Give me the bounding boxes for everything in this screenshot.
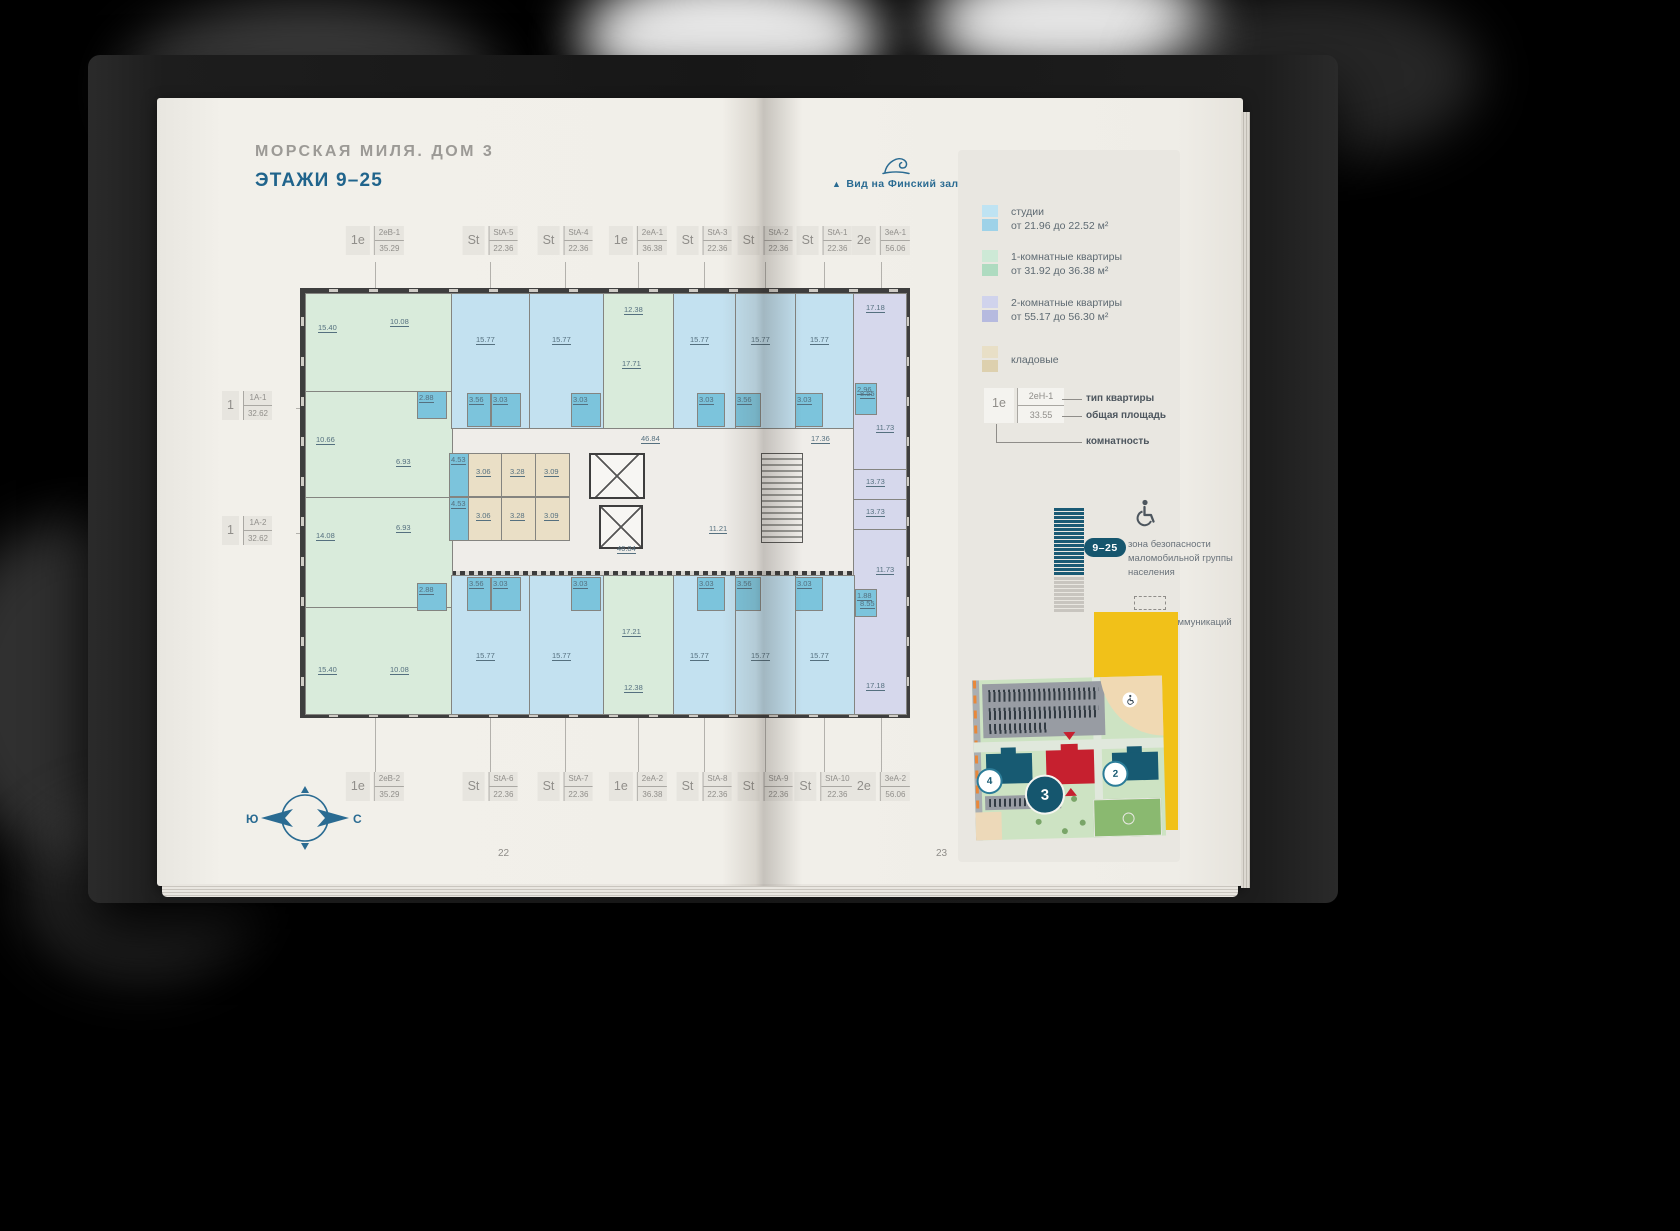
view-direction-icon: ▲: [832, 179, 841, 189]
building-3-badge: 3: [1024, 774, 1065, 815]
plan-callout-bottom: StStA-722.36: [538, 772, 593, 801]
room-area-label: 4.53: [451, 456, 466, 465]
room-area-label: 3.28: [510, 468, 525, 477]
apartment-unit: 17.2112.38: [603, 575, 675, 715]
apartment-area: 32.62: [244, 406, 272, 420]
callout-rooms-label: комнатность: [1086, 436, 1149, 447]
plan-callout-bottom: 1е2еА-236.38: [609, 772, 667, 801]
legend-panel: студииот 21.96 до 22.52 м² 1-комнатные к…: [958, 150, 1180, 862]
room-area-label: 3.09: [544, 468, 559, 477]
apartment-unit: 13.73: [853, 499, 907, 531]
callout-connector: [375, 262, 376, 288]
callout-connector: [704, 262, 705, 288]
bathroom-cell: 3.56: [735, 577, 761, 611]
building-4-badge: 4: [976, 768, 1003, 795]
apartment-rooms: St: [538, 226, 560, 255]
apartment-type: 2еА-2: [638, 772, 667, 787]
apartment-rooms: St: [738, 226, 760, 255]
callout-connector: [765, 718, 766, 772]
map-football-field: [1093, 798, 1162, 838]
apartment-type: StA-5: [489, 226, 517, 241]
room-area-label: 6.93: [396, 458, 411, 467]
apartment-type: StA-6: [489, 772, 517, 787]
plan-callout-top: 1е2еА-136.38: [609, 226, 667, 255]
bathroom-cell: 3.03: [571, 393, 601, 427]
plan-callout-bottom: 2е3еА-256.06: [852, 772, 910, 801]
apartment-type: StA-7: [564, 772, 592, 787]
apartment-type: 3еА-1: [881, 226, 910, 241]
apartment-type: StA-4: [564, 226, 592, 241]
room-area-label: 3.03: [493, 396, 508, 405]
apartment-type: 3еА-2: [881, 772, 910, 787]
legend-label: 2-комнатные квартиры: [1011, 297, 1122, 309]
callout-type-label: тип квартиры: [1086, 393, 1154, 404]
plan-callout-top: StStA-322.36: [677, 226, 732, 255]
room-area-label: 15.40: [318, 666, 337, 675]
bathroom-cell: 3.03: [491, 577, 521, 611]
callout-connector: [490, 718, 491, 772]
legend-swatch: [982, 296, 998, 325]
apartment-unit: 3.28: [501, 453, 536, 497]
bathroom-cell: 3.56: [735, 393, 761, 427]
room-area-label: 17.71: [622, 360, 641, 369]
room-area-label: 17.21: [622, 628, 641, 637]
apartment-unit: 3.09: [535, 453, 570, 497]
room-area-label: 4.53: [451, 500, 466, 509]
apartment-type: 2еА-1: [638, 226, 667, 241]
corridor-area-label: 46.84: [617, 545, 636, 554]
room-area-label: 3.06: [476, 512, 491, 521]
room-area-label: 14.08: [316, 532, 335, 541]
legend-swatch: [982, 205, 998, 234]
elevator-shaft: [599, 505, 643, 549]
legend-range: от 21.96 до 22.52 м²: [1011, 220, 1108, 232]
apartment-area: 22.36: [764, 241, 792, 255]
page-stack: [1241, 112, 1250, 888]
page-subtitle: ЭТАЖИ 9–25: [255, 170, 383, 192]
room-area-label: 12.38: [624, 306, 643, 315]
plan-callout-bottom: StStA-922.36: [738, 772, 793, 801]
building-floors-rest: [1054, 577, 1084, 612]
apartment-rooms: 1е: [609, 226, 633, 255]
bathroom-cell: 2.88: [417, 391, 447, 419]
legend-swatch: [982, 346, 998, 374]
apartment-rooms: St: [738, 772, 760, 801]
room-area-label: 6.93: [396, 524, 411, 533]
room-area-label: 3.03: [573, 580, 588, 589]
callout-connector: [824, 262, 825, 288]
callout-connector: [765, 262, 766, 288]
floors-badge: 9–25: [1084, 538, 1126, 557]
apartment-unit: 3.06: [467, 497, 502, 541]
room-area-label: 15.77: [476, 652, 495, 661]
building-2-badge: 2: [1102, 760, 1129, 787]
plan-callout-top: StStA-222.36: [738, 226, 793, 255]
apartment-rooms: St: [677, 772, 699, 801]
callout-connector: [490, 262, 491, 288]
apartment-area: 22.36: [821, 787, 853, 801]
room-area-label: 15.77: [810, 652, 829, 661]
bathroom-cell: 4.53: [449, 497, 469, 541]
apartment-rooms: 1: [222, 516, 239, 545]
legend-range: от 55.17 до 56.30 м²: [1011, 311, 1108, 323]
apartment-unit: 3.28: [501, 497, 536, 541]
plan-callout-side: 11А-232.62: [222, 516, 272, 545]
apartment-unit: 13.73: [853, 469, 907, 501]
room-area-label: 3.56: [737, 580, 752, 589]
room-area-label: 3.06: [476, 468, 491, 477]
bathroom-cell: 3.03: [697, 393, 725, 427]
right-page-number: 23: [936, 848, 947, 859]
room-area-label: 15.77: [476, 336, 495, 345]
callout-connector: [565, 718, 566, 772]
view-marker-icon: [1063, 732, 1075, 740]
apartment-area: 56.06: [881, 241, 910, 255]
room-area-label: 15.77: [690, 336, 709, 345]
room-area-label: 15.40: [318, 324, 337, 333]
room-area-label: 2.88: [419, 394, 434, 403]
callout-connector: [881, 262, 882, 288]
apartment-type: StA-8: [703, 772, 731, 787]
apartment-type: 1А-2: [244, 516, 272, 531]
apartment-area: 22.36: [703, 787, 731, 801]
elevator-shaft: [589, 453, 645, 499]
apartment-unit: 3.09: [535, 497, 570, 541]
room-area-label: 3.03: [699, 580, 714, 589]
wheelchair-icon: [1132, 498, 1156, 533]
plan-callout-bottom: 1е2еВ-235.29: [346, 772, 404, 801]
corridor-area-label: 11.21: [709, 525, 727, 534]
room-area-label: 12.38: [624, 684, 643, 693]
apartment-type: StA-10: [821, 772, 853, 787]
corridor-area-label: 46.84: [641, 435, 660, 444]
scene: МОРСКАЯ МИЛЯ. ДОМ 3 ЭТАЖИ 9–25 15.4010.0…: [0, 0, 1680, 1231]
room-area-label: 11.73: [876, 566, 894, 575]
room-area-label: 3.09: [544, 512, 559, 521]
room-area-label: 15.77: [810, 336, 829, 345]
plan-callout-top: StStA-522.36: [463, 226, 518, 255]
apartment-area: 22.36: [823, 241, 851, 255]
apartment-type: 2еВ-1: [375, 226, 404, 241]
bathroom-cell: 4.53: [449, 453, 469, 497]
room-area-label: 3.56: [469, 396, 484, 405]
apartment-rooms: 1е: [346, 226, 370, 255]
apartment-type: StA-9: [764, 772, 792, 787]
callout-connector: [375, 718, 376, 772]
apartment-area: 32.62: [244, 531, 272, 545]
apartment-rooms: St: [538, 772, 560, 801]
legend-item-studios: студииот 21.96 до 22.52 м²: [982, 205, 1108, 234]
apartment-area: 22.36: [564, 241, 592, 255]
bathroom-cell: 3.56: [467, 393, 491, 427]
room-area-label: 10.08: [390, 666, 409, 675]
site-map: 4 3 2: [972, 676, 1166, 841]
left-page-number: 22: [498, 848, 509, 859]
legend-label: 1-комнатные квартиры: [1011, 251, 1122, 263]
apartment-rooms: St: [463, 226, 485, 255]
accessibility-note: зона безопасности маломобильной группы н…: [1128, 538, 1256, 579]
bathroom-cell: 3.03: [697, 577, 725, 611]
map-sand-area: [975, 812, 1002, 841]
room-area-label: 11.73: [876, 424, 894, 433]
plan-callout-bottom: StStA-622.36: [463, 772, 518, 801]
bathroom-cell: 3.03: [491, 393, 521, 427]
room-area-label: 2.88: [419, 586, 434, 595]
apartment-area: 36.38: [638, 241, 667, 255]
view-marker-icon: [1065, 788, 1077, 796]
room-area-label: 3.56: [737, 396, 752, 405]
apartment-area: 22.36: [764, 787, 792, 801]
compass-east-label: С: [353, 812, 362, 826]
legend-swatch: [982, 250, 998, 279]
apartment-rooms: 1: [222, 391, 239, 420]
building-floors-highlight: [1054, 508, 1084, 576]
apartment-area: 22.36: [564, 787, 592, 801]
apartment-area: 35.29: [375, 241, 404, 255]
bathroom-cell: 3.03: [795, 393, 823, 427]
apartment-area: 22.36: [703, 241, 731, 255]
apartment-label-example: 1е 2еН-1 33.55: [984, 388, 1064, 423]
apartment-rooms: St: [794, 772, 816, 801]
stairwell: [761, 453, 803, 543]
bathroom-cell: 2.88: [417, 583, 447, 611]
page-stack: [162, 884, 1238, 897]
room-area-label: 15.77: [690, 652, 709, 661]
room-area-label: 15.77: [751, 652, 770, 661]
apartment-rooms: St: [463, 772, 485, 801]
apartment-rooms: 1е: [346, 772, 370, 801]
plan-callout-side: 11А-132.62: [222, 391, 272, 420]
room-area-label: 10.66: [316, 436, 335, 445]
window-ticks: [301, 293, 304, 713]
legend-range: от 31.92 до 36.38 м²: [1011, 265, 1108, 277]
room-area-label: 13.73: [866, 478, 885, 487]
apartment-unit: 17.188.5511.73: [853, 293, 907, 471]
plan-callout-top: 2е3еА-156.06: [852, 226, 910, 255]
bathroom-cell: 3.03: [795, 577, 823, 611]
example-area: 33.55: [1018, 406, 1064, 423]
apartment-area: 56.06: [881, 787, 910, 801]
apartment-area: 35.29: [375, 787, 404, 801]
room-area-label: 15.77: [552, 336, 571, 345]
room-area-label: 3.03: [573, 396, 588, 405]
legend-item-two-room: 2-комнатные квартирыот 55.17 до 56.30 м²: [982, 296, 1122, 325]
callout-area-label: общая площадь: [1086, 410, 1166, 421]
room-area-label: 1.88: [857, 592, 872, 601]
legend-item-storage: кладовые: [982, 346, 1059, 374]
callout-connector: [704, 718, 705, 772]
bathroom-cell: 3.03: [571, 577, 601, 611]
apartment-type: StA-3: [703, 226, 731, 241]
room-area-label: 2.96: [857, 386, 872, 395]
room-area-label: 17.18: [866, 682, 885, 691]
window-ticks: [305, 289, 905, 292]
apartment-unit: 11.738.5517.18: [853, 529, 907, 715]
callout-connector: [565, 262, 566, 288]
apartment-rooms: 2е: [852, 226, 876, 255]
callout-connector: [638, 262, 639, 288]
example-type: 2еН-1: [1018, 388, 1064, 406]
apartment-type: StA-1: [823, 226, 851, 241]
example-rooms: 1е: [984, 388, 1014, 423]
room-area-label: 17.18: [866, 304, 885, 313]
room-area-label: 3.56: [469, 580, 484, 589]
legend-item-one-room: 1-комнатные квартирыот 31.92 до 36.38 м²: [982, 250, 1122, 279]
bathroom-cell: 3.56: [467, 577, 491, 611]
corridor-area-label: 17.36: [811, 435, 830, 444]
callout-connector: [638, 718, 639, 772]
callout-connector: [881, 718, 882, 772]
plan-callout-top: 1е2еВ-135.29: [346, 226, 404, 255]
plan-callout-bottom: StStA-1022.36: [794, 772, 853, 801]
legend-label: кладовые: [1011, 354, 1059, 366]
page-title: МОРСКАЯ МИЛЯ. ДОМ 3: [255, 143, 494, 161]
apartment-area: 36.38: [638, 787, 667, 801]
room-area-label: 3.28: [510, 512, 525, 521]
legend-label: студии: [1011, 206, 1044, 218]
apartment-unit: 15.4010.08: [305, 293, 453, 393]
map-parking: [982, 681, 1105, 738]
compass-west-label: Ю: [246, 812, 258, 826]
view-note-label: Вид на Финский залив: [846, 178, 972, 190]
room-area-label: 13.73: [866, 508, 885, 517]
room-area-label: 3.03: [797, 396, 812, 405]
apartment-rooms: St: [677, 226, 699, 255]
room-area-label: 10.08: [390, 318, 409, 327]
callout-connector: [824, 718, 825, 772]
apartment-area: 22.36: [489, 241, 517, 255]
apartment-rooms: St: [797, 226, 819, 255]
view-note: ▲Вид на Финский залив: [832, 178, 972, 190]
apartment-unit: 3.06: [467, 453, 502, 497]
room-area-label: 8.55: [860, 600, 875, 609]
room-area-label: 3.03: [797, 580, 812, 589]
apartment-unit: 12.3817.71: [603, 293, 675, 429]
room-area-label: 15.77: [751, 336, 770, 345]
apartment-area: 22.36: [489, 787, 517, 801]
apartment-unit: 15.4010.08: [305, 607, 453, 715]
communications-icon: [1134, 596, 1166, 610]
plan-callout-top: StStA-122.36: [797, 226, 852, 255]
apartment-type: 2еВ-2: [375, 772, 404, 787]
apartment-rooms: 2е: [852, 772, 876, 801]
room-area-label: 15.77: [552, 652, 571, 661]
plan-callout-bottom: StStA-822.36: [677, 772, 732, 801]
plan-callout-top: StStA-422.36: [538, 226, 593, 255]
floor-plan: 15.4010.0810.666.9314.086.9315.4010.0815…: [300, 288, 910, 718]
room-area-label: 3.03: [493, 580, 508, 589]
apartment-type: 1А-1: [244, 391, 272, 406]
room-area-label: 3.03: [699, 396, 714, 405]
apartment-rooms: 1е: [609, 772, 633, 801]
apartment-type: StA-2: [764, 226, 792, 241]
